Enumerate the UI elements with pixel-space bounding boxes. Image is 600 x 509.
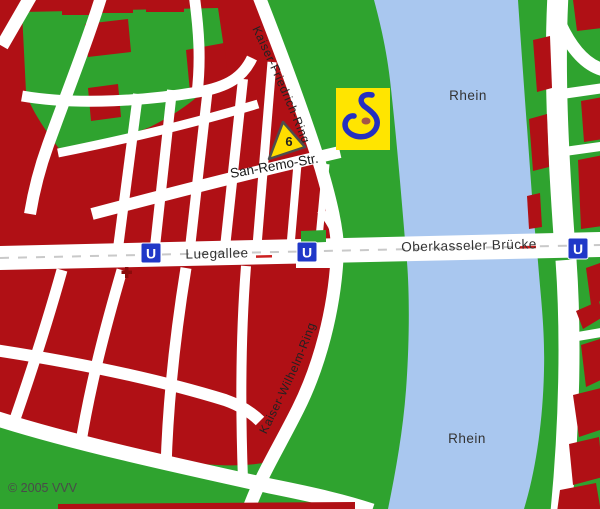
building-block (578, 155, 600, 229)
green-strip (301, 230, 326, 243)
ubahn-letter: U (573, 241, 583, 257)
ubahn-letter: U (302, 245, 312, 261)
ubahn-station-icon[interactable]: U (141, 243, 161, 263)
building-block (573, 0, 600, 31)
cross-horizontal (122, 271, 133, 275)
vvv-logo-marker[interactable] (336, 88, 390, 150)
street (569, 332, 600, 338)
street (562, 88, 600, 94)
street-label-luegallee: Luegallee (185, 245, 248, 261)
river-label-lower: Rhein (448, 431, 486, 446)
building-block (569, 437, 600, 485)
city-map: Rhein Rhein Luegallee Oberkasseler Brück… (0, 0, 600, 509)
building-block (581, 97, 600, 142)
street (194, 0, 199, 94)
ubahn-station-icon[interactable]: U (297, 242, 317, 262)
street-label-oberkasseler-bruecke: Oberkasseler Brücke (401, 236, 537, 254)
river-label-upper: Rhein (449, 88, 487, 103)
street (241, 266, 246, 480)
map-canvas: Rhein Rhein Luegallee Oberkasseler Brück… (0, 0, 600, 509)
route-number: 6 (285, 134, 292, 149)
ubahn-station-icon[interactable]: U (568, 238, 588, 259)
street (561, 146, 600, 152)
ubahn-letter: U (146, 246, 156, 262)
copyright-text: © 2005 VVV (8, 481, 78, 495)
building-block (146, 0, 184, 12)
building-block (527, 193, 542, 229)
building-block (62, 0, 92, 15)
logo-dot (362, 118, 371, 125)
